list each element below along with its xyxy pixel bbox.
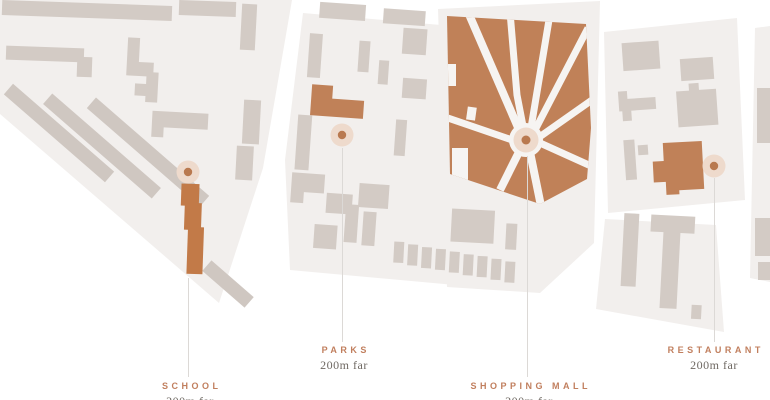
parks-label: PARKS: [318, 345, 370, 355]
shopping-mall-distance: 200m far: [505, 394, 553, 400]
neighborhood-map: SCHOOL 200m far PARKS 200m far SHOPPING …: [0, 0, 770, 400]
parks-label-group: PARKS 200m far: [318, 345, 370, 373]
school-label-group: SCHOOL 200m far: [158, 381, 221, 400]
school-label: SCHOOL: [158, 381, 221, 391]
parks-location-pin-icon[interactable]: [331, 124, 354, 147]
shopping-mall-label: SHOPPING MALL: [467, 381, 591, 391]
shopping-mall-label-group: SHOPPING MALL 200m far: [467, 381, 591, 400]
restaurant-label: RESTAURANT: [664, 345, 764, 355]
restaurant-distance: 200m far: [690, 358, 738, 373]
shopping-mall-location-pin-icon[interactable]: [514, 128, 539, 153]
school-location-pin-icon[interactable]: [177, 161, 200, 184]
map-block-restaurant: [596, 18, 745, 332]
map-block-parks: [285, 1, 455, 285]
school-distance: 200m far: [166, 394, 214, 400]
restaurant-location-pin-icon[interactable]: [703, 155, 726, 178]
restaurant-label-group: RESTAURANT 200m far: [664, 345, 764, 373]
map-block-school: [0, 0, 292, 308]
map-illustration: [0, 0, 770, 400]
map-block-right-edge: [750, 26, 770, 282]
parks-distance: 200m far: [320, 358, 368, 373]
